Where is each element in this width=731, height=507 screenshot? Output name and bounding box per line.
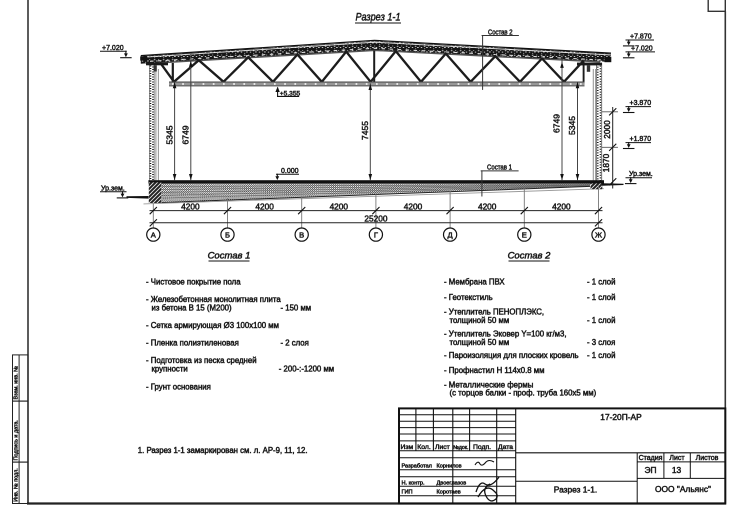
svg-text:Состав 1: Состав 1 [208,251,251,262]
svg-text:6749: 6749 [552,114,562,133]
svg-text:4200: 4200 [404,201,423,211]
svg-text:толщиной 50 мм: толщиной 50 мм [450,338,510,347]
svg-text:- Сетка армирующая Ø3 100х100: - Сетка армирующая Ø3 100х100 мм [146,321,279,330]
svg-text:Ур.зем.: Ур.зем. [629,171,653,178]
svg-text:Коротаев: Коротаев [437,490,461,496]
svg-text:В: В [299,230,304,239]
svg-text:Листов: Листов [696,455,719,462]
svg-text:- 2 слоя: - 2 слоя [281,339,309,348]
svg-text:Подп.: Подп. [473,444,491,451]
svg-text:- Профнастил Н 114х0.8 мм: - Профнастил Н 114х0.8 мм [444,366,545,375]
svg-text:7455: 7455 [360,121,370,140]
svg-text:- 1 слой: - 1 слой [587,351,616,360]
svg-text:13: 13 [672,465,682,475]
svg-text:толщиной 50 мм: толщиной 50 мм [450,316,510,325]
svg-text:А: А [151,230,157,239]
svg-text:ЭП: ЭП [644,465,656,475]
svg-text:- Мембрана ПВХ: - Мембрана ПВХ [444,277,505,286]
svg-text:4200: 4200 [255,201,274,211]
svg-text:+7.020: +7.020 [102,45,124,52]
svg-text:4200: 4200 [330,201,349,211]
svg-text:- 3 слоя: - 3 слоя [587,338,615,347]
svg-text:- Железобетонная монолитная п: - Железобетонная монолитная плита [146,295,281,304]
svg-text:№док.: №док. [453,445,468,451]
svg-text:- Утеплитель ПЕНОПЛЭКС,: - Утеплитель ПЕНОПЛЭКС, [444,307,544,316]
svg-text:Лист: Лист [669,455,685,462]
svg-text:- 1 слой: - 1 слой [587,277,616,286]
svg-text:6749: 6749 [181,125,191,144]
svg-text:Д: Д [448,230,453,239]
svg-text:Разработал: Разработал [402,463,432,469]
svg-text:ГИП: ГИП [402,490,413,496]
svg-text:1. Разрез 1-1 замаркирован см.: 1. Разрез 1-1 замаркирован см. л. АР-9, … [138,446,308,455]
svg-text:Состав 1: Состав 1 [487,164,512,171]
svg-text:1870: 1870 [601,153,611,172]
svg-text:Взам. инв. №: Взам. инв. № [14,366,20,400]
svg-text:5345: 5345 [567,116,577,135]
svg-text:Дата: Дата [498,444,513,451]
svg-text:4200: 4200 [552,201,571,211]
svg-text:- 1 слой: - 1 слой [587,316,616,325]
svg-text:Подпись и дата.: Подпись и дата. [14,420,20,460]
svg-text:5345: 5345 [164,125,174,144]
svg-text:Н. контр.: Н. контр. [402,481,426,487]
svg-text:- Геотекстиль: - Геотекстиль [444,293,493,302]
svg-text:- Пленка полиэтиленовая: - Пленка полиэтиленовая [146,339,239,348]
svg-text:+5.355: +5.355 [280,91,301,98]
svg-text:4200: 4200 [181,201,200,211]
svg-text:17-20П-АР: 17-20П-АР [600,412,642,422]
svg-text:Ж: Ж [595,230,602,239]
svg-text:Разрез 1-1.: Разрез 1-1. [554,485,597,495]
svg-text:Инв. № подл.: Инв. № подл. [14,468,20,502]
svg-text:Г: Г [374,230,378,239]
svg-text:Лист: Лист [435,444,450,451]
svg-text:4200: 4200 [478,201,497,211]
svg-text:- 200-:-1200 мм: - 200-:-1200 мм [279,364,334,373]
svg-text:Кол.: Кол. [417,444,431,451]
svg-text:Б: Б [225,230,230,239]
svg-text:25200: 25200 [364,213,387,223]
svg-text:Изм: Изм [401,444,414,451]
svg-text:- 1 слой: - 1 слой [587,293,616,302]
svg-text:Состав 2: Состав 2 [508,251,552,262]
svg-text:Е: Е [522,230,527,239]
svg-text:- 150 мм: - 150 мм [281,304,312,313]
svg-text:Корнилов: Корнилов [437,463,462,469]
svg-text:крупности: крупности [152,364,188,373]
svg-text:(с торцов балки - проф. труба: (с торцов балки - проф. труба 160х5 мм) [450,388,597,397]
svg-text:2000: 2000 [602,120,612,139]
svg-text:Стадия: Стадия [639,455,663,462]
svg-text:- Грунт основания: - Грунт основания [146,383,211,392]
svg-text:Разрез 1-1: Разрез 1-1 [356,12,401,24]
svg-text:из бетона В 15 (М200): из бетона В 15 (М200) [152,304,232,313]
svg-text:Двоеглазов: Двоеглазов [437,481,467,487]
svg-text:- Пароизоляция для плоских кро: - Пароизоляция для плоских кровель [444,351,579,360]
svg-text:ООО "Альянс": ООО "Альянс" [655,484,711,494]
svg-text:- Чистовое покрытие пола: - Чистовое покрытие пола [146,277,241,286]
